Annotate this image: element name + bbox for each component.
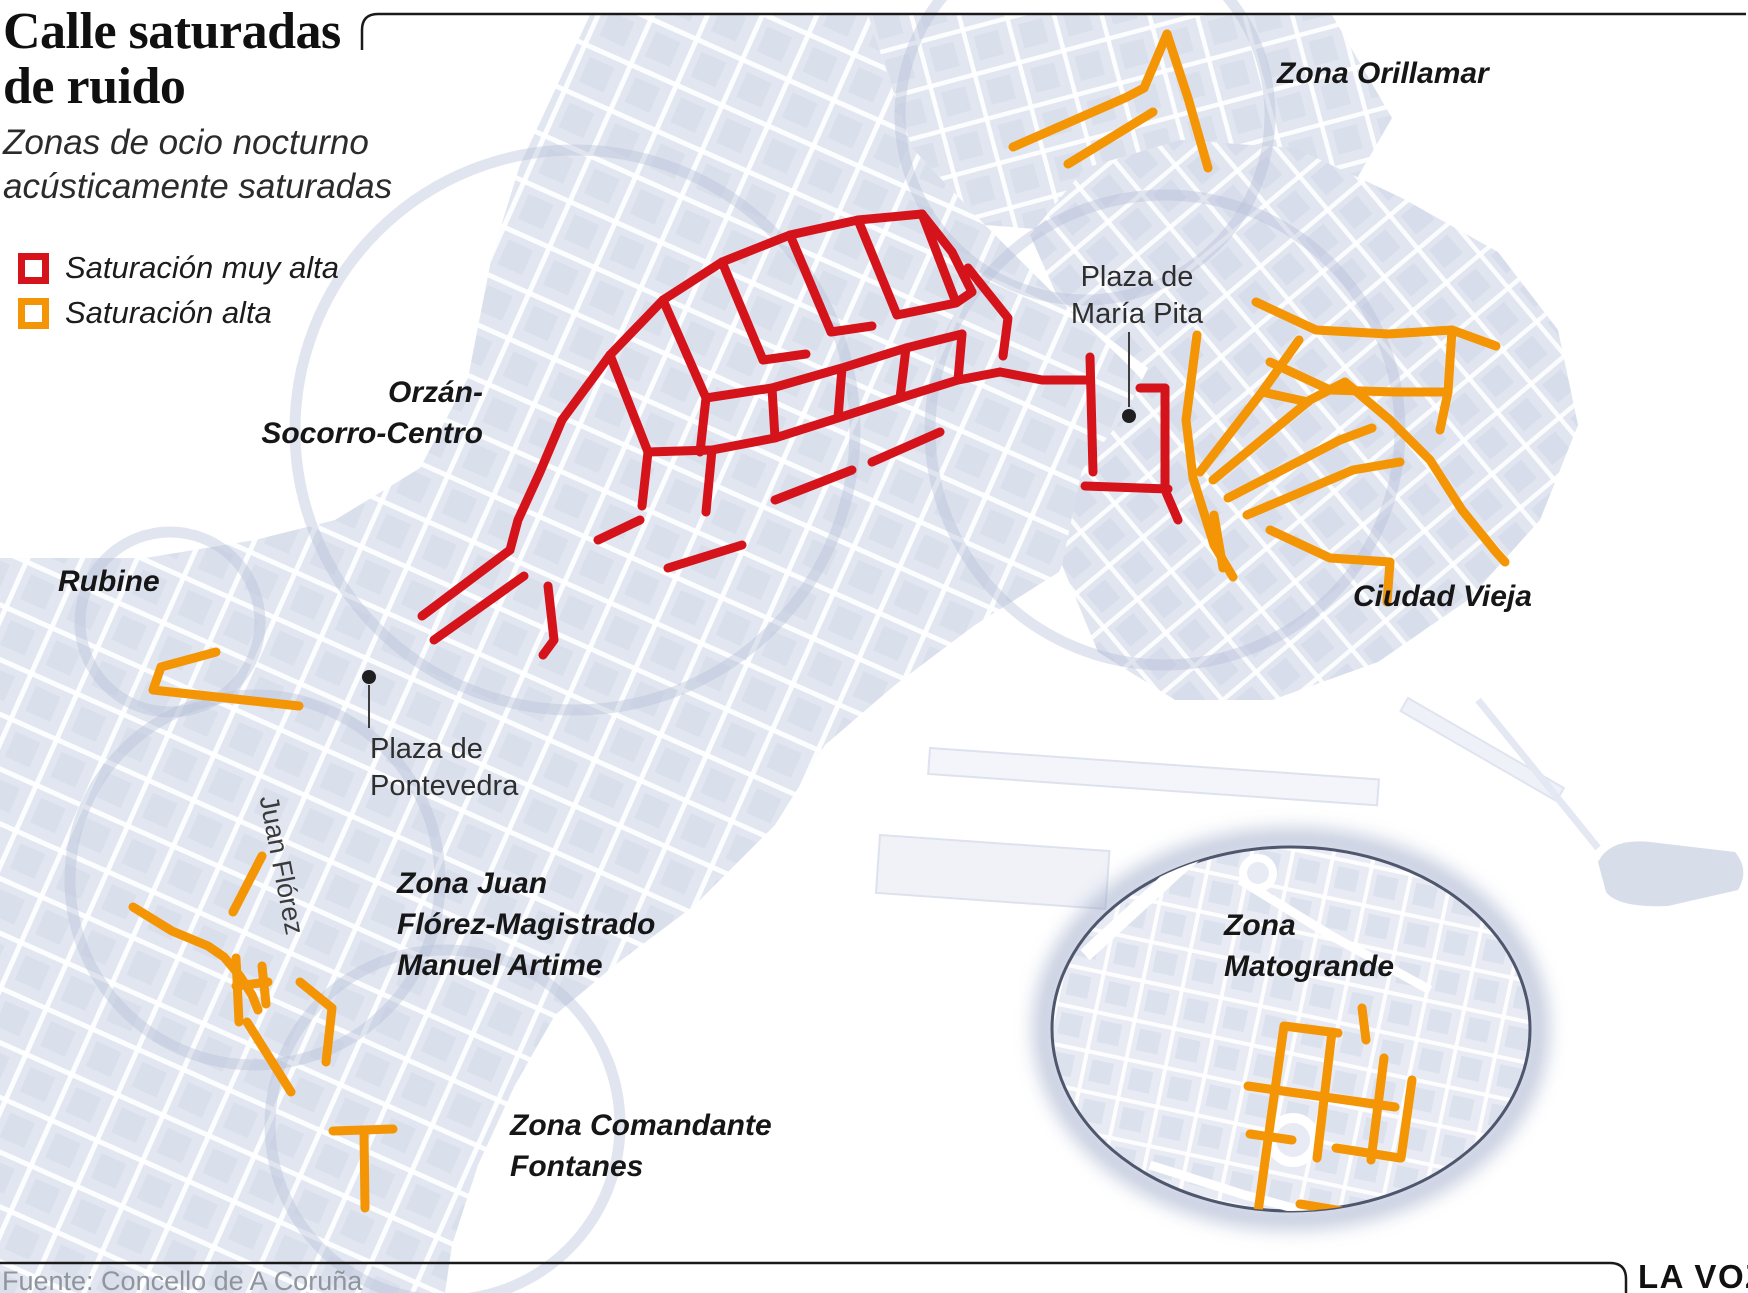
street-segment [262,966,266,1004]
street-segment [772,388,775,438]
zone-label-rubine: Rubine [58,561,160,602]
street-segment [1085,486,1168,489]
street-segment [831,326,872,332]
maria-pita-dot [1122,409,1136,423]
pontevedra-line-2: Pontevedra [370,768,518,805]
street-segment [642,452,648,506]
brand-logo: LA VOZ [1638,1258,1748,1293]
street-segment [1362,1008,1366,1040]
zone-label-ciudad-vieja: Ciudad Vieja [1353,576,1532,617]
street-segment [1090,357,1093,472]
zona-jf-line-1: Zona Juan [397,863,655,904]
source-credit: Fuente: Concello de A Coruña [2,1266,362,1293]
island [1598,841,1743,906]
matogrande-line-2: Matogrande [1224,946,1394,987]
legend-item-high: Saturación alta [18,295,272,331]
comandante-line-2: Fontanes [510,1146,772,1187]
title-line-1: Calle saturadas [3,4,341,59]
street-segment [763,354,806,360]
legend-swatch-very-high [18,253,49,284]
title-line-2: de ruido [3,59,341,114]
pontevedra-line-1: Plaza de [370,731,518,768]
page-title: Calle saturadas de ruido [3,4,341,114]
maria-pita-line-2: María Pita [1071,296,1203,333]
infographic-map: Calle saturadas de ruido Zonas de ocio n… [0,0,1748,1293]
street-segment [1250,1134,1292,1140]
legend-label-very-high: Saturación muy alta [65,250,339,286]
street-segment [838,368,842,418]
label-plaza-pontevedra: Plaza de Pontevedra [370,731,518,805]
street-segment [706,450,712,512]
zone-label-juan-florez-magistrado: Zona Juan Flórez-Magistrado Manuel Artim… [397,863,655,986]
street-segment [958,334,962,380]
maria-pita-line-1: Plaza de [1071,259,1203,296]
legend-label-high: Saturación alta [65,295,272,331]
zone-label-matogrande: Zona Matogrande [1224,905,1394,987]
matogrande-inset [1045,758,1537,1218]
label-plaza-maria-pita: Plaza de María Pita [1071,259,1203,333]
legend-swatch-high [18,298,49,329]
street-segment [364,1131,365,1208]
pontevedra-dot [362,670,376,684]
zona-jf-line-2: Flórez-Magistrado [397,904,655,945]
page-subtitle: Zonas de ocio nocturno acústicamente sat… [3,121,392,209]
subtitle-line-2: acústicamente saturadas [3,165,392,209]
zone-label-comandante-fontanes: Zona Comandante Fontanes [510,1105,772,1187]
matogrande-line-1: Zona [1224,905,1394,946]
zona-jf-line-3: Manuel Artime [397,945,655,986]
orzan-line-1: Orzán- [261,372,483,413]
comandante-line-1: Zona Comandante [510,1105,772,1146]
subtitle-line-1: Zonas de ocio nocturno [3,121,392,165]
orzan-line-2: Socorro-Centro [261,413,483,454]
zone-label-orillamar: Zona Orillamar [1277,53,1489,94]
legend-item-very-high: Saturación muy alta [18,250,339,286]
zone-label-orzan-socorro-centro: Orzán- Socorro-Centro [261,372,483,454]
street-segment [900,348,906,398]
